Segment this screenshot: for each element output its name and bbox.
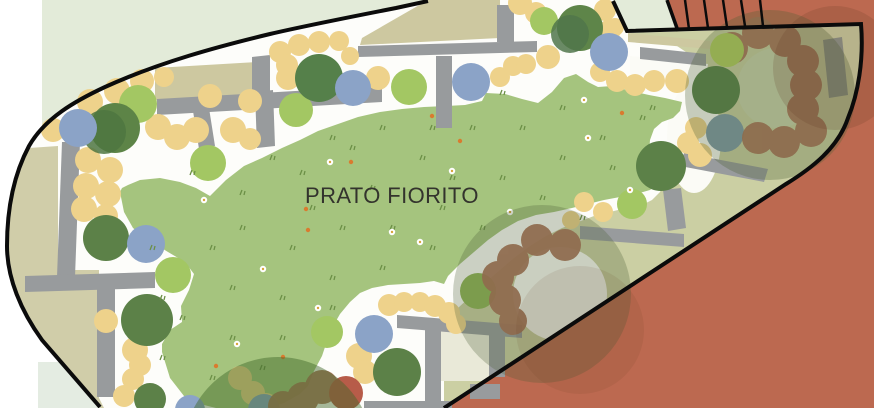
svg-text:PRATO FIORITO: PRATO FIORITO [305,183,479,208]
